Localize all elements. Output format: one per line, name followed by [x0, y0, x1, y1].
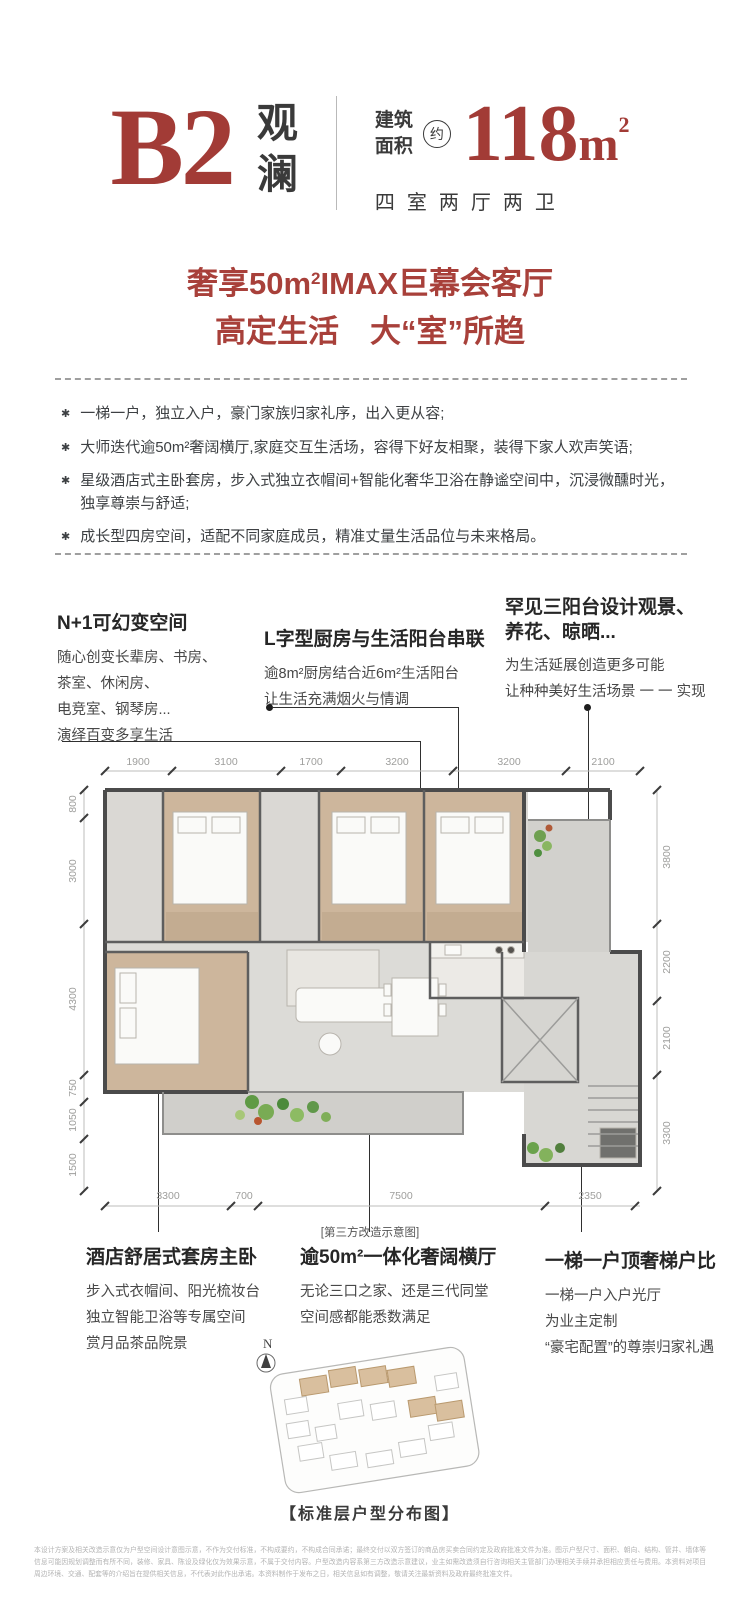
asterisk-bullet-icon: ✱	[61, 470, 70, 515]
callout-kitchen: L字型厨房与生活阳台串联 逾8m²厨房结合近6m²生活阳台 让生活充满烟火与情调	[264, 628, 485, 713]
svg-text:1500: 1500	[67, 1153, 79, 1177]
feature-item: ✱ 成长型四房空间，适配不同家庭成员，精准丈量生活品位与未来格局。	[61, 526, 687, 549]
callout-master-suite: 酒店舒居式套房主卧 步入式衣帽间、阳光梳妆台 独立智能卫浴等专属空间 赏月品茶品…	[86, 1246, 260, 1357]
callout-title: N+1可幻变空间	[57, 612, 217, 637]
approx-badge: 约	[423, 120, 451, 148]
feature-item: ✱ 大师迭代逾50m²奢阔横厅,家庭交互生活场，容得下好友相聚，装得下家人欢声笑…	[61, 437, 687, 460]
callout-private-elevator: 一梯一户顶奢梯户比 一梯一户入户光厅 为业主定制 “豪宅配置”的尊崇归家礼遇	[545, 1250, 716, 1361]
headline-line1: 奢享50m2IMAX巨幕会客厅	[0, 260, 740, 308]
svg-text:1900: 1900	[126, 756, 150, 768]
svg-text:2200: 2200	[661, 950, 673, 974]
headline: 奢享50m2IMAX巨幕会客厅 高定生活 大“室”所趋	[0, 260, 740, 356]
callout-title: L字型厨房与生活阳台串联	[264, 628, 485, 653]
svg-text:3100: 3100	[214, 756, 238, 768]
svg-text:800: 800	[67, 795, 79, 813]
asterisk-bullet-icon: ✱	[61, 526, 70, 549]
header-divider	[336, 96, 337, 210]
site-plan-caption: 【标准层户型分布图】	[0, 1500, 740, 1524]
svg-text:2100: 2100	[661, 1026, 673, 1050]
svg-text:3800: 3800	[661, 845, 673, 869]
callout-title: 罕见三阳台设计观景、	[505, 596, 706, 621]
plan-name-char2: 澜	[257, 153, 298, 196]
headline-line2: 高定生活 大“室”所趋	[0, 308, 740, 356]
floor-plan: 1900 3100 1700 3200 3200 2100 800 3000 4…	[0, 735, 740, 1235]
callout-balconies: 罕见三阳台设计观景、 养花、晾晒... 为生活延展创造更多可能 让种种美好生活场…	[505, 596, 706, 706]
svg-text:1700: 1700	[299, 756, 323, 768]
svg-text:3000: 3000	[67, 859, 79, 883]
svg-text:7500: 7500	[389, 1190, 413, 1202]
callout-title: 逾50m²一体化奢阔横厅	[300, 1246, 496, 1271]
disclaimer: 本设计方案及相关改造示意仅为户型空间设计意图示意，不作为交付标准，不构成要约，不…	[34, 1545, 706, 1581]
svg-text:2350: 2350	[578, 1190, 602, 1202]
plan-name: 观 澜	[257, 102, 298, 196]
svg-text:3300: 3300	[156, 1190, 180, 1202]
svg-text:2100: 2100	[591, 756, 615, 768]
asterisk-bullet-icon: ✱	[61, 437, 70, 460]
plan-name-char1: 观	[257, 102, 298, 145]
asterisk-bullet-icon: ✱	[61, 403, 70, 426]
area-value: 118m2	[463, 96, 630, 172]
site-boundary	[269, 1345, 481, 1494]
site-plan: N	[245, 1330, 495, 1502]
svg-text:3200: 3200	[385, 756, 409, 768]
plan-code: B2	[111, 92, 233, 202]
callout-title: 酒店舒居式套房主卧	[86, 1246, 260, 1271]
callout-title: 养花、晾晒...	[505, 621, 706, 646]
floor-plan-caption: [第三方改造示意图]	[0, 1224, 740, 1240]
svg-text:1050: 1050	[67, 1108, 79, 1132]
north-arrow-icon: N	[257, 1336, 275, 1372]
callout-title: 一梯一户顶奢梯户比	[545, 1250, 716, 1275]
svg-text:3200: 3200	[497, 756, 521, 768]
header: B2 观 澜 建筑 面积 约 118m2 四室两厅两卫	[0, 92, 740, 215]
svg-text:3300: 3300	[661, 1121, 673, 1145]
svg-text:750: 750	[67, 1079, 79, 1097]
svg-text:4300: 4300	[67, 987, 79, 1011]
leader-line	[272, 707, 459, 708]
svg-text:700: 700	[235, 1190, 253, 1202]
area-block: 建筑 面积 约 118m2 四室两厅两卫	[375, 96, 630, 215]
poster-page: B2 观 澜 建筑 面积 约 118m2 四室两厅两卫 奢享50m2IMAX巨幕…	[0, 0, 740, 1603]
callout-living-hall: 逾50m²一体化奢阔横厅 无论三口之家、还是三代同堂 空间感都能悉数满足	[300, 1246, 496, 1331]
feature-list: ✱ 一梯一户，独立入户，豪门家族归家礼序，出入更从容; ✱ 大师迭代逾50m²奢…	[55, 378, 687, 555]
callout-flex-space: N+1可幻变空间 随心创变长辈房、书房、 茶室、休闲房、 电竞室、钢琴房... …	[57, 612, 217, 749]
feature-item: ✱ 星级酒店式主卧套房，步入式独立衣帽间+智能化奢华卫浴在静谧空间中，沉浸微醺时…	[61, 470, 687, 515]
area-label: 建筑 面积	[375, 108, 413, 159]
feature-item: ✱ 一梯一户，独立入户，豪门家族归家礼序，出入更从容;	[61, 403, 687, 426]
layout-desc: 四室两厅两卫	[375, 186, 630, 215]
svg-text:N: N	[263, 1336, 273, 1351]
